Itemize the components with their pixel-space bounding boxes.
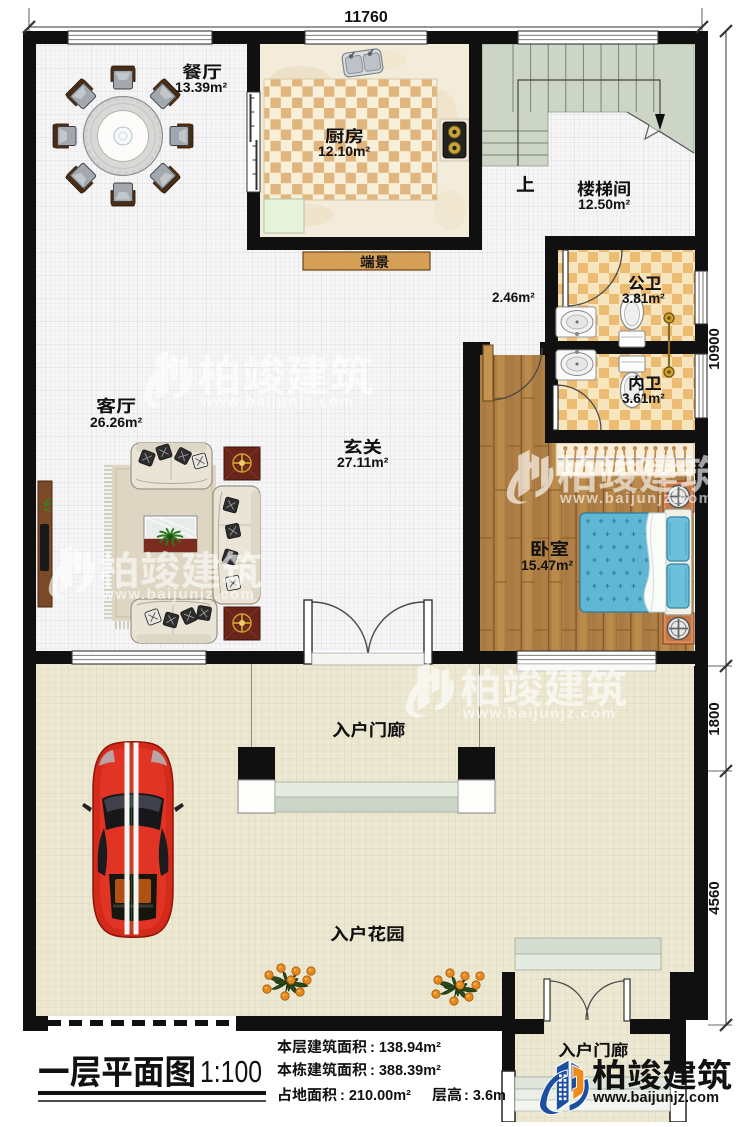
svg-text:www.baijunjz.com: www.baijunjz.com bbox=[592, 1090, 719, 1106]
svg-text:27.11m²: 27.11m² bbox=[337, 454, 389, 470]
svg-text:www.baijunjz.com: www.baijunjz.com bbox=[101, 586, 255, 603]
svg-text:15.47m²: 15.47m² bbox=[521, 557, 573, 573]
svg-text:: 388.39m²: : 388.39m² bbox=[370, 1063, 441, 1079]
svg-text:3.61m²: 3.61m² bbox=[622, 391, 665, 406]
svg-text:1:100: 1:100 bbox=[200, 1054, 262, 1089]
svg-text:2.46m²: 2.46m² bbox=[492, 290, 535, 305]
svg-text:13.39m²: 13.39m² bbox=[175, 79, 227, 95]
svg-text:: 138.94m²: : 138.94m² bbox=[370, 1040, 441, 1056]
svg-text:12.10m²: 12.10m² bbox=[318, 143, 370, 159]
svg-text:www.baijunjz.com: www.baijunjz.com bbox=[559, 490, 713, 507]
svg-text:10900: 10900 bbox=[706, 328, 723, 370]
svg-text:1800: 1800 bbox=[706, 702, 723, 735]
svg-text:26.26m²: 26.26m² bbox=[90, 414, 142, 430]
svg-text:3.81m²: 3.81m² bbox=[622, 291, 665, 306]
svg-text:11760: 11760 bbox=[344, 9, 388, 26]
svg-text:4560: 4560 bbox=[706, 881, 723, 914]
svg-text:12.50m²: 12.50m² bbox=[578, 196, 630, 212]
svg-text:www.baijunjz.com: www.baijunjz.com bbox=[462, 705, 616, 722]
svg-text:: 210.00m²: : 210.00m² bbox=[340, 1088, 411, 1104]
svg-text:: 3.6m: : 3.6m bbox=[464, 1088, 506, 1104]
svg-text:www.baijunjz.com: www.baijunjz.com bbox=[200, 393, 354, 410]
